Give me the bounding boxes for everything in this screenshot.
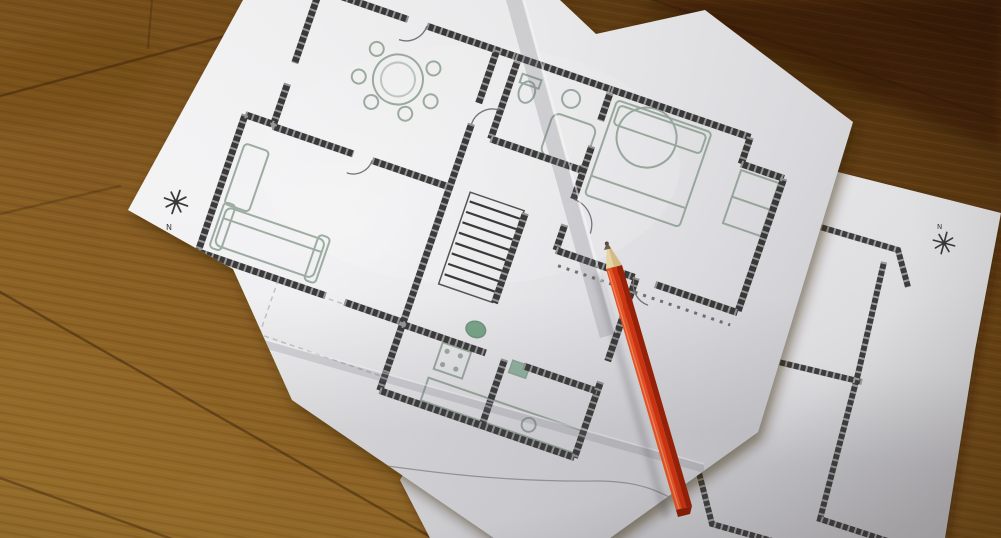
- photo-svg: N: [0, 0, 1001, 538]
- vignette: [0, 0, 1001, 538]
- photo-scene: N: [0, 0, 1001, 538]
